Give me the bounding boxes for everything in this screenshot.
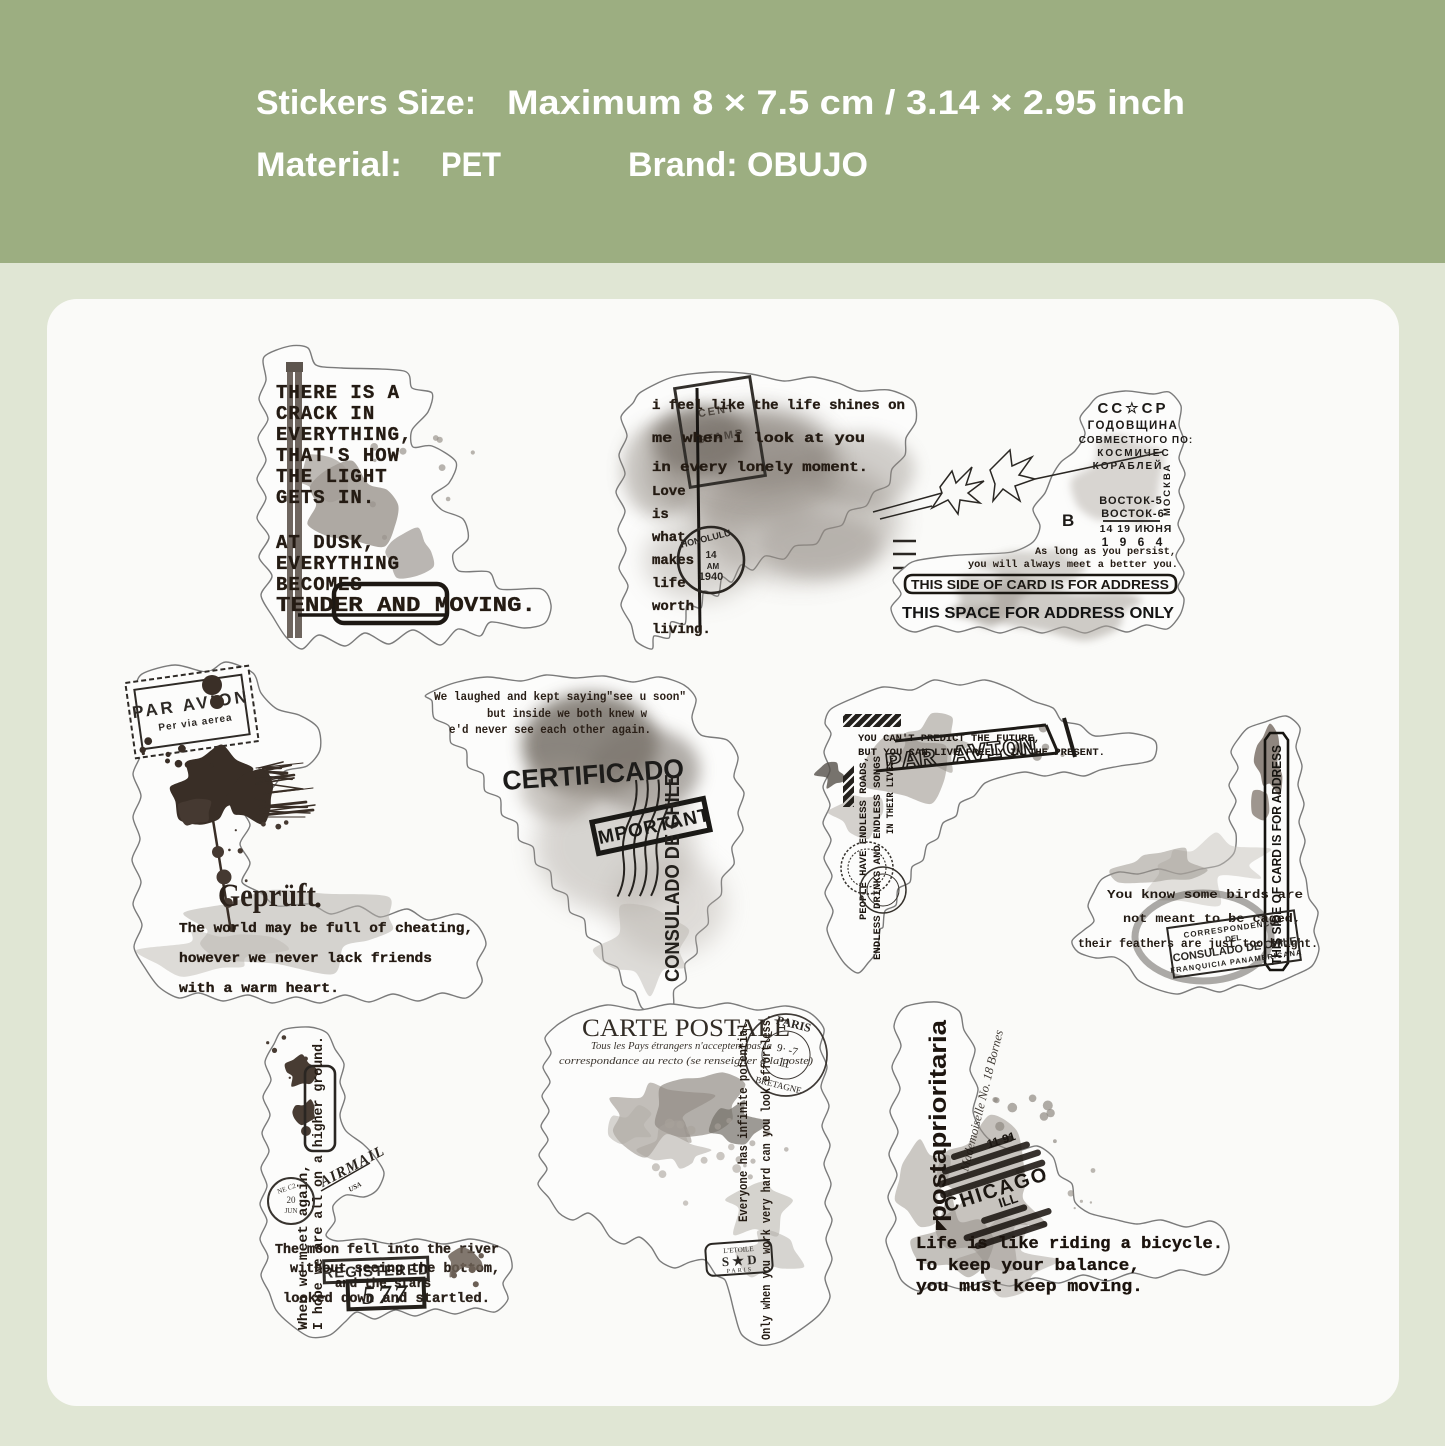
svg-text:AM: AM [707,562,720,571]
svg-text:Stickers Size:: Stickers Size: [256,84,476,122]
svg-text:CRACK IN: CRACK IN [276,403,375,425]
svg-text:i feel like the life shines on: i feel like the life shines on [652,398,905,414]
svg-text:В: В [1062,511,1074,530]
svg-text:14: 14 [705,550,717,561]
svg-text:ВОСТОК-5: ВОСТОК-5 [1099,495,1162,507]
svg-text:however we never lack friends: however we never lack friends [179,951,432,967]
svg-text:Geprüft: Geprüft [218,878,316,914]
svg-text:КОРАБЛЕЙ: КОРАБЛЕЙ [1093,459,1164,472]
svg-text:ВОСТОК-6: ВОСТОК-6 [1101,508,1164,520]
svg-text:The world may be full of cheat: The world may be full of cheating, [179,921,473,937]
svg-text:You know some birds are: You know some birds are [1107,888,1303,902]
svg-text:THIS SIDE OF CARD IS FOR ADDRE: THIS SIDE OF CARD IS FOR ADDRESS [1270,745,1284,965]
svg-text:THIS SIDE OF CARD IS FOR ADDRE: THIS SIDE OF CARD IS FOR ADDRESS [911,578,1169,592]
svg-text:in every lonely moment.: in every lonely moment. [652,460,868,476]
svg-text:577: 577 [362,1279,411,1310]
svg-text:life: life [652,576,686,592]
svg-text:living.: living. [652,622,711,638]
svg-text:ENDLESS DRINKS AND ENDLESS SON: ENDLESS DRINKS AND ENDLESS SONGS [872,756,884,960]
svg-text:Love: Love [652,484,686,500]
svg-text:you will always meet a better: you will always meet a better you. [968,559,1178,571]
svg-text:with a warm heart.: with a warm heart. [179,981,339,997]
svg-text:CONSULADO DE CHILE: CONSULADO DE CHILE [662,774,684,982]
svg-text:As long as you persist,: As long as you persist, [1035,546,1176,558]
svg-text:THERE IS A: THERE IS A [276,382,400,404]
svg-text:is: is [652,507,669,523]
svg-text:Brand: OBUJO: Brand: OBUJO [628,146,868,184]
svg-text:makes: makes [652,553,694,569]
svg-text:Material:: Material: [256,146,402,184]
svg-text:СОВМЕСТНОГО ПО:: СОВМЕСТНОГО ПО: [1079,435,1193,446]
svg-text:Life is like riding a bicycle.: Life is like riding a bicycle. [916,1235,1223,1254]
svg-text:THAT'S HOW: THAT'S HOW [276,445,400,467]
svg-text:me when i look at you: me when i look at you [652,431,865,447]
svg-text:МОСКВА: МОСКВА [1162,463,1173,516]
svg-text:EVERYTHING,: EVERYTHING, [276,424,412,446]
svg-text:We laughed and kept saying"see: We laughed and kept saying"see u soon" [434,691,686,704]
svg-text:PET: PET [441,146,501,184]
svg-text:e'd never see each other again: e'd never see each other again. [449,724,651,737]
svg-text:Only when you work very hard c: Only when you work very hard can you loo… [759,1014,774,1340]
svg-text:JUN: JUN [285,1207,298,1215]
svg-text:Everyone has infinite potentia: Everyone has infinite potential. [736,1017,751,1222]
svg-text:1940: 1940 [699,571,723,583]
svg-text:IN THEIR LIVES.: IN THEIR LIVES. [885,756,897,834]
svg-text:you must keep moving.: you must keep moving. [916,1278,1143,1297]
svg-text:AT DUSK,: AT DUSK, [276,532,375,554]
svg-text:GETS IN.: GETS IN. [276,487,375,509]
svg-text:20: 20 [287,1195,297,1205]
svg-text:14 19 ИЮНЯ: 14 19 ИЮНЯ [1100,523,1173,535]
svg-text:EVERYTHING: EVERYTHING [276,553,400,575]
svg-text:THIS SPACE FOR ADDRESS ONLY: THIS SPACE FOR ADDRESS ONLY [902,605,1175,622]
svg-text:THE LIGHT: THE LIGHT [276,466,388,488]
svg-text:Maximum 8 × 7.5 cm / 3.14 × 2.: Maximum 8 × 7.5 cm / 3.14 × 2.95 inch [507,84,1185,122]
svg-text:but inside we both knew w: but inside we both knew w [487,708,647,721]
svg-text:ГОДОВЩИНА: ГОДОВЩИНА [1088,420,1179,432]
svg-text:correspondance au recto (se re: correspondance au recto (se renseigner à… [559,1055,813,1067]
svg-text:СС☆СР: СС☆СР [1098,400,1169,417]
svg-text:To keep your balance,: To keep your balance, [916,1257,1140,1276]
svg-text:worth: worth [652,599,694,615]
